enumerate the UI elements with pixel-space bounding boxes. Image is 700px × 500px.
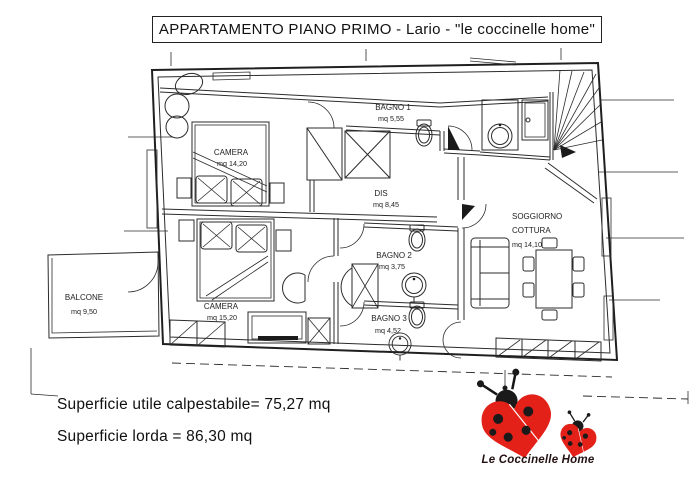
chair-icon [573, 257, 584, 271]
boundary-dashed-line [172, 363, 612, 377]
living-furniture [471, 238, 601, 361]
wardrobe-icon [170, 320, 225, 347]
bedroom1-furniture [165, 70, 284, 206]
room-label: SOGGIORNO [512, 212, 562, 221]
room-label: DIS [374, 189, 387, 198]
room-area: mq 9,50 [71, 307, 97, 316]
nightstand-icon [270, 183, 284, 203]
door-leaf-icon [462, 204, 475, 220]
nightstand-icon [179, 220, 194, 241]
door-arc [340, 224, 364, 248]
room-label: COTTURA [512, 226, 551, 235]
logo-text: Le Coccinelle Home [468, 454, 608, 466]
shaft-icon [307, 128, 390, 180]
dining-table-icon [523, 238, 584, 320]
stairs-icon [554, 70, 602, 150]
chair-icon [542, 238, 557, 248]
ladybug-icon [472, 363, 559, 465]
floor-plan: CAMERA mq 14,20 BAGNO 1 mq 5,55 DIS mq 8… [0, 0, 700, 500]
door-leaf-icon [448, 126, 460, 150]
bedroom2-furniture [170, 219, 330, 347]
summary-usable-area: Superficie utile calpestabile= 75,27 mq [57, 396, 331, 414]
chair-icon [573, 283, 584, 297]
room-label: BAGNO 1 [375, 103, 411, 112]
summary-gross-area: Superficie lorda = 86,30 mq [57, 428, 252, 446]
room-label: CAMERA [214, 148, 249, 157]
door-arc [308, 256, 334, 282]
chair-icon [542, 310, 557, 320]
room-label: CAMERA [204, 302, 239, 311]
shower-icon [522, 100, 548, 140]
room-label: BALCONE [65, 293, 103, 302]
door-arc [443, 322, 461, 340]
chair-icon [165, 94, 189, 118]
door-arc [128, 262, 158, 292]
sink-icon [482, 100, 518, 150]
sink-icon [389, 333, 411, 361]
room-label: BAGNO 3 [371, 314, 407, 323]
room-label: BAGNO 2 [376, 251, 412, 260]
page: APPARTAMENTO PIANO PRIMO - Lario - "le c… [0, 0, 700, 500]
sink-icon [402, 273, 426, 303]
toilet-icon [416, 120, 432, 146]
chair-icon [523, 257, 534, 271]
room-area: mq 3,75 [379, 262, 405, 271]
room-area: mq 14,10 [512, 240, 542, 249]
chair-icon [166, 116, 188, 138]
nightstand-icon [276, 230, 291, 251]
closet-icon [308, 318, 330, 344]
armchair-icon [283, 273, 305, 303]
dresser-icon [248, 312, 306, 343]
room-area: mq 8,45 [373, 200, 399, 209]
room-area: mq 14,20 [217, 159, 247, 168]
bed-icon [197, 219, 274, 301]
toilet-icon [409, 302, 425, 328]
room-area: mq 15,20 [207, 313, 237, 322]
room-area: mq 5,55 [378, 114, 404, 123]
nightstand-icon [177, 178, 191, 198]
chair-icon [523, 283, 534, 297]
boundary-dashed-line [583, 396, 688, 399]
door-arc [308, 102, 334, 128]
room-area: mq 4,52 [375, 326, 401, 335]
sofa-icon [471, 238, 509, 308]
